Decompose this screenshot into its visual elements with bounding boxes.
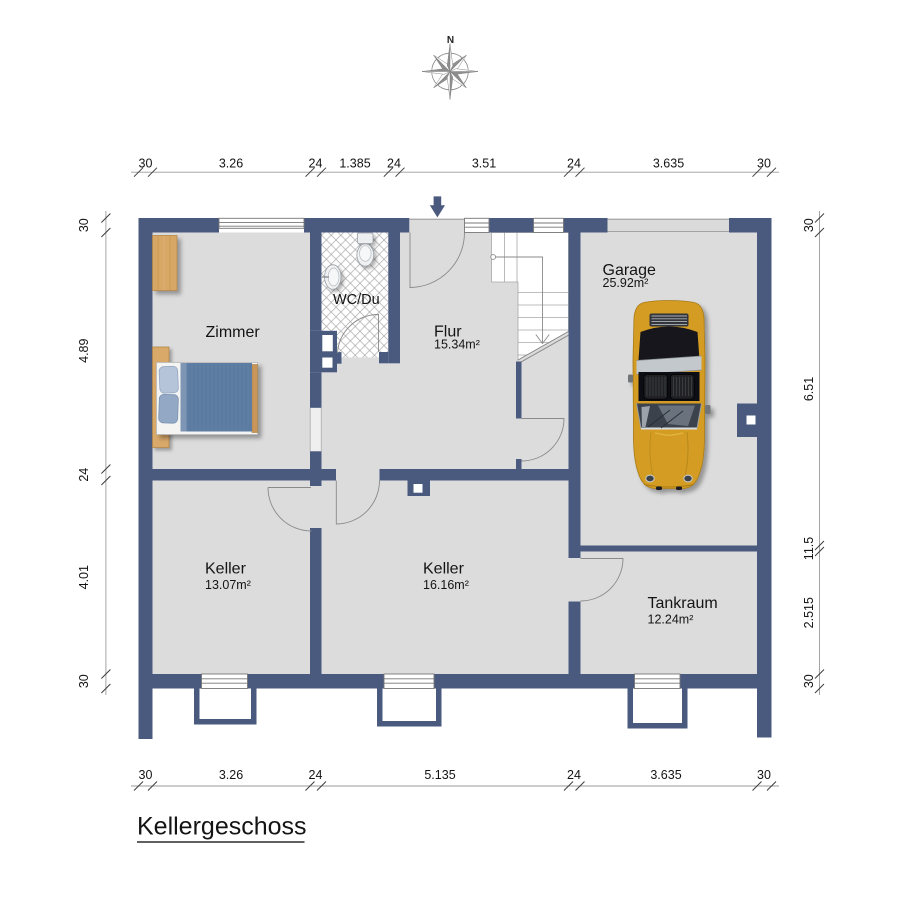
svg-text:25.92m²: 25.92m² bbox=[603, 276, 649, 290]
svg-text:Keller: Keller bbox=[205, 561, 247, 578]
svg-text:3.26: 3.26 bbox=[219, 768, 243, 782]
svg-text:N: N bbox=[447, 35, 454, 46]
svg-text:30: 30 bbox=[77, 674, 91, 688]
svg-text:4.89: 4.89 bbox=[77, 338, 91, 362]
svg-text:24: 24 bbox=[567, 768, 581, 782]
svg-text:24: 24 bbox=[77, 468, 91, 482]
svg-text:30: 30 bbox=[77, 218, 91, 232]
svg-text:30: 30 bbox=[139, 157, 153, 171]
svg-text:30: 30 bbox=[802, 218, 816, 232]
svg-text:5.135: 5.135 bbox=[424, 768, 455, 782]
svg-text:6.51: 6.51 bbox=[802, 377, 816, 401]
svg-text:3.51: 3.51 bbox=[472, 157, 496, 171]
svg-text:Zimmer: Zimmer bbox=[206, 324, 261, 341]
svg-text:30: 30 bbox=[802, 674, 816, 688]
svg-text:15.34m²: 15.34m² bbox=[434, 338, 480, 352]
svg-text:24: 24 bbox=[387, 157, 401, 171]
svg-text:3.635: 3.635 bbox=[653, 157, 684, 171]
svg-text:WC/Du: WC/Du bbox=[333, 292, 380, 308]
svg-text:24: 24 bbox=[309, 157, 323, 171]
svg-text:1.385: 1.385 bbox=[339, 157, 370, 171]
svg-text:16.16m²: 16.16m² bbox=[423, 578, 469, 592]
svg-text:3.26: 3.26 bbox=[219, 157, 243, 171]
svg-text:24: 24 bbox=[309, 768, 323, 782]
svg-text:30: 30 bbox=[757, 157, 771, 171]
svg-text:Keller: Keller bbox=[423, 561, 465, 578]
svg-text:Tankraum: Tankraum bbox=[648, 595, 718, 612]
svg-text:Kellergeschoss: Kellergeschoss bbox=[137, 813, 307, 841]
svg-text:24: 24 bbox=[567, 157, 581, 171]
svg-text:4.01: 4.01 bbox=[77, 565, 91, 589]
svg-text:11.5: 11.5 bbox=[802, 537, 816, 560]
svg-text:30: 30 bbox=[757, 768, 771, 782]
svg-text:30: 30 bbox=[139, 768, 153, 782]
svg-text:12.24m²: 12.24m² bbox=[648, 613, 694, 627]
svg-text:13.07m²: 13.07m² bbox=[205, 578, 251, 592]
svg-text:2.515: 2.515 bbox=[802, 597, 816, 628]
svg-text:3.635: 3.635 bbox=[650, 768, 681, 782]
